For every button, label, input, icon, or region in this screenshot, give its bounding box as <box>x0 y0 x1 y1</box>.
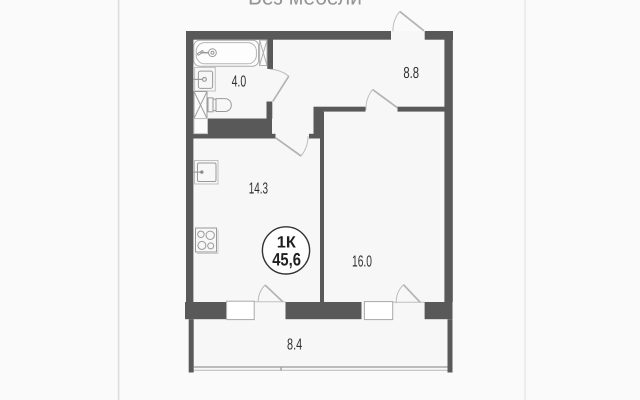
svg-text:8.4: 8.4 <box>287 337 302 354</box>
svg-text:Без мебели: Без мебели <box>248 0 362 10</box>
svg-text:16.0: 16.0 <box>352 253 372 270</box>
svg-text:8.8: 8.8 <box>403 65 419 82</box>
svg-text:4.0: 4.0 <box>232 74 247 91</box>
svg-text:45,6: 45,6 <box>272 250 301 270</box>
svg-text:14.3: 14.3 <box>249 181 268 198</box>
